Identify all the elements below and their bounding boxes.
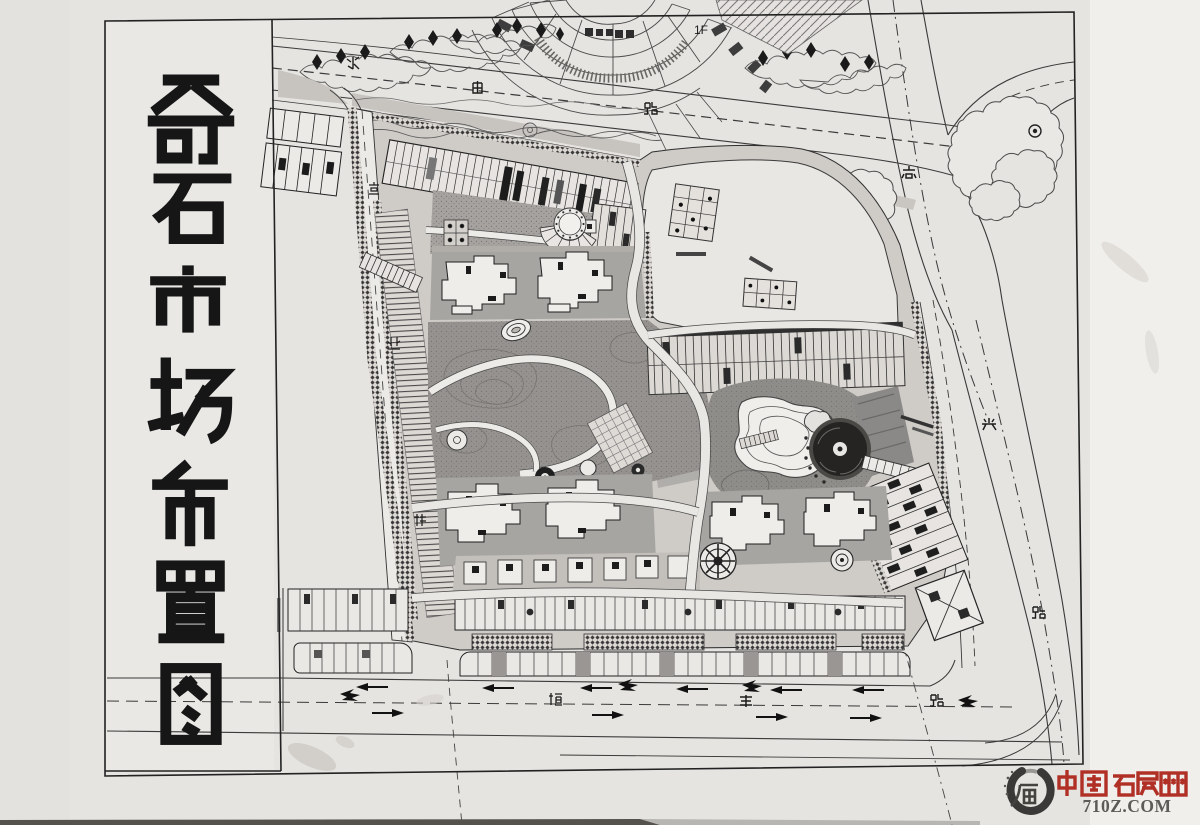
svg-text:1F: 1F — [694, 23, 708, 37]
svg-text:710Z.COM: 710Z.COM — [1082, 796, 1171, 816]
